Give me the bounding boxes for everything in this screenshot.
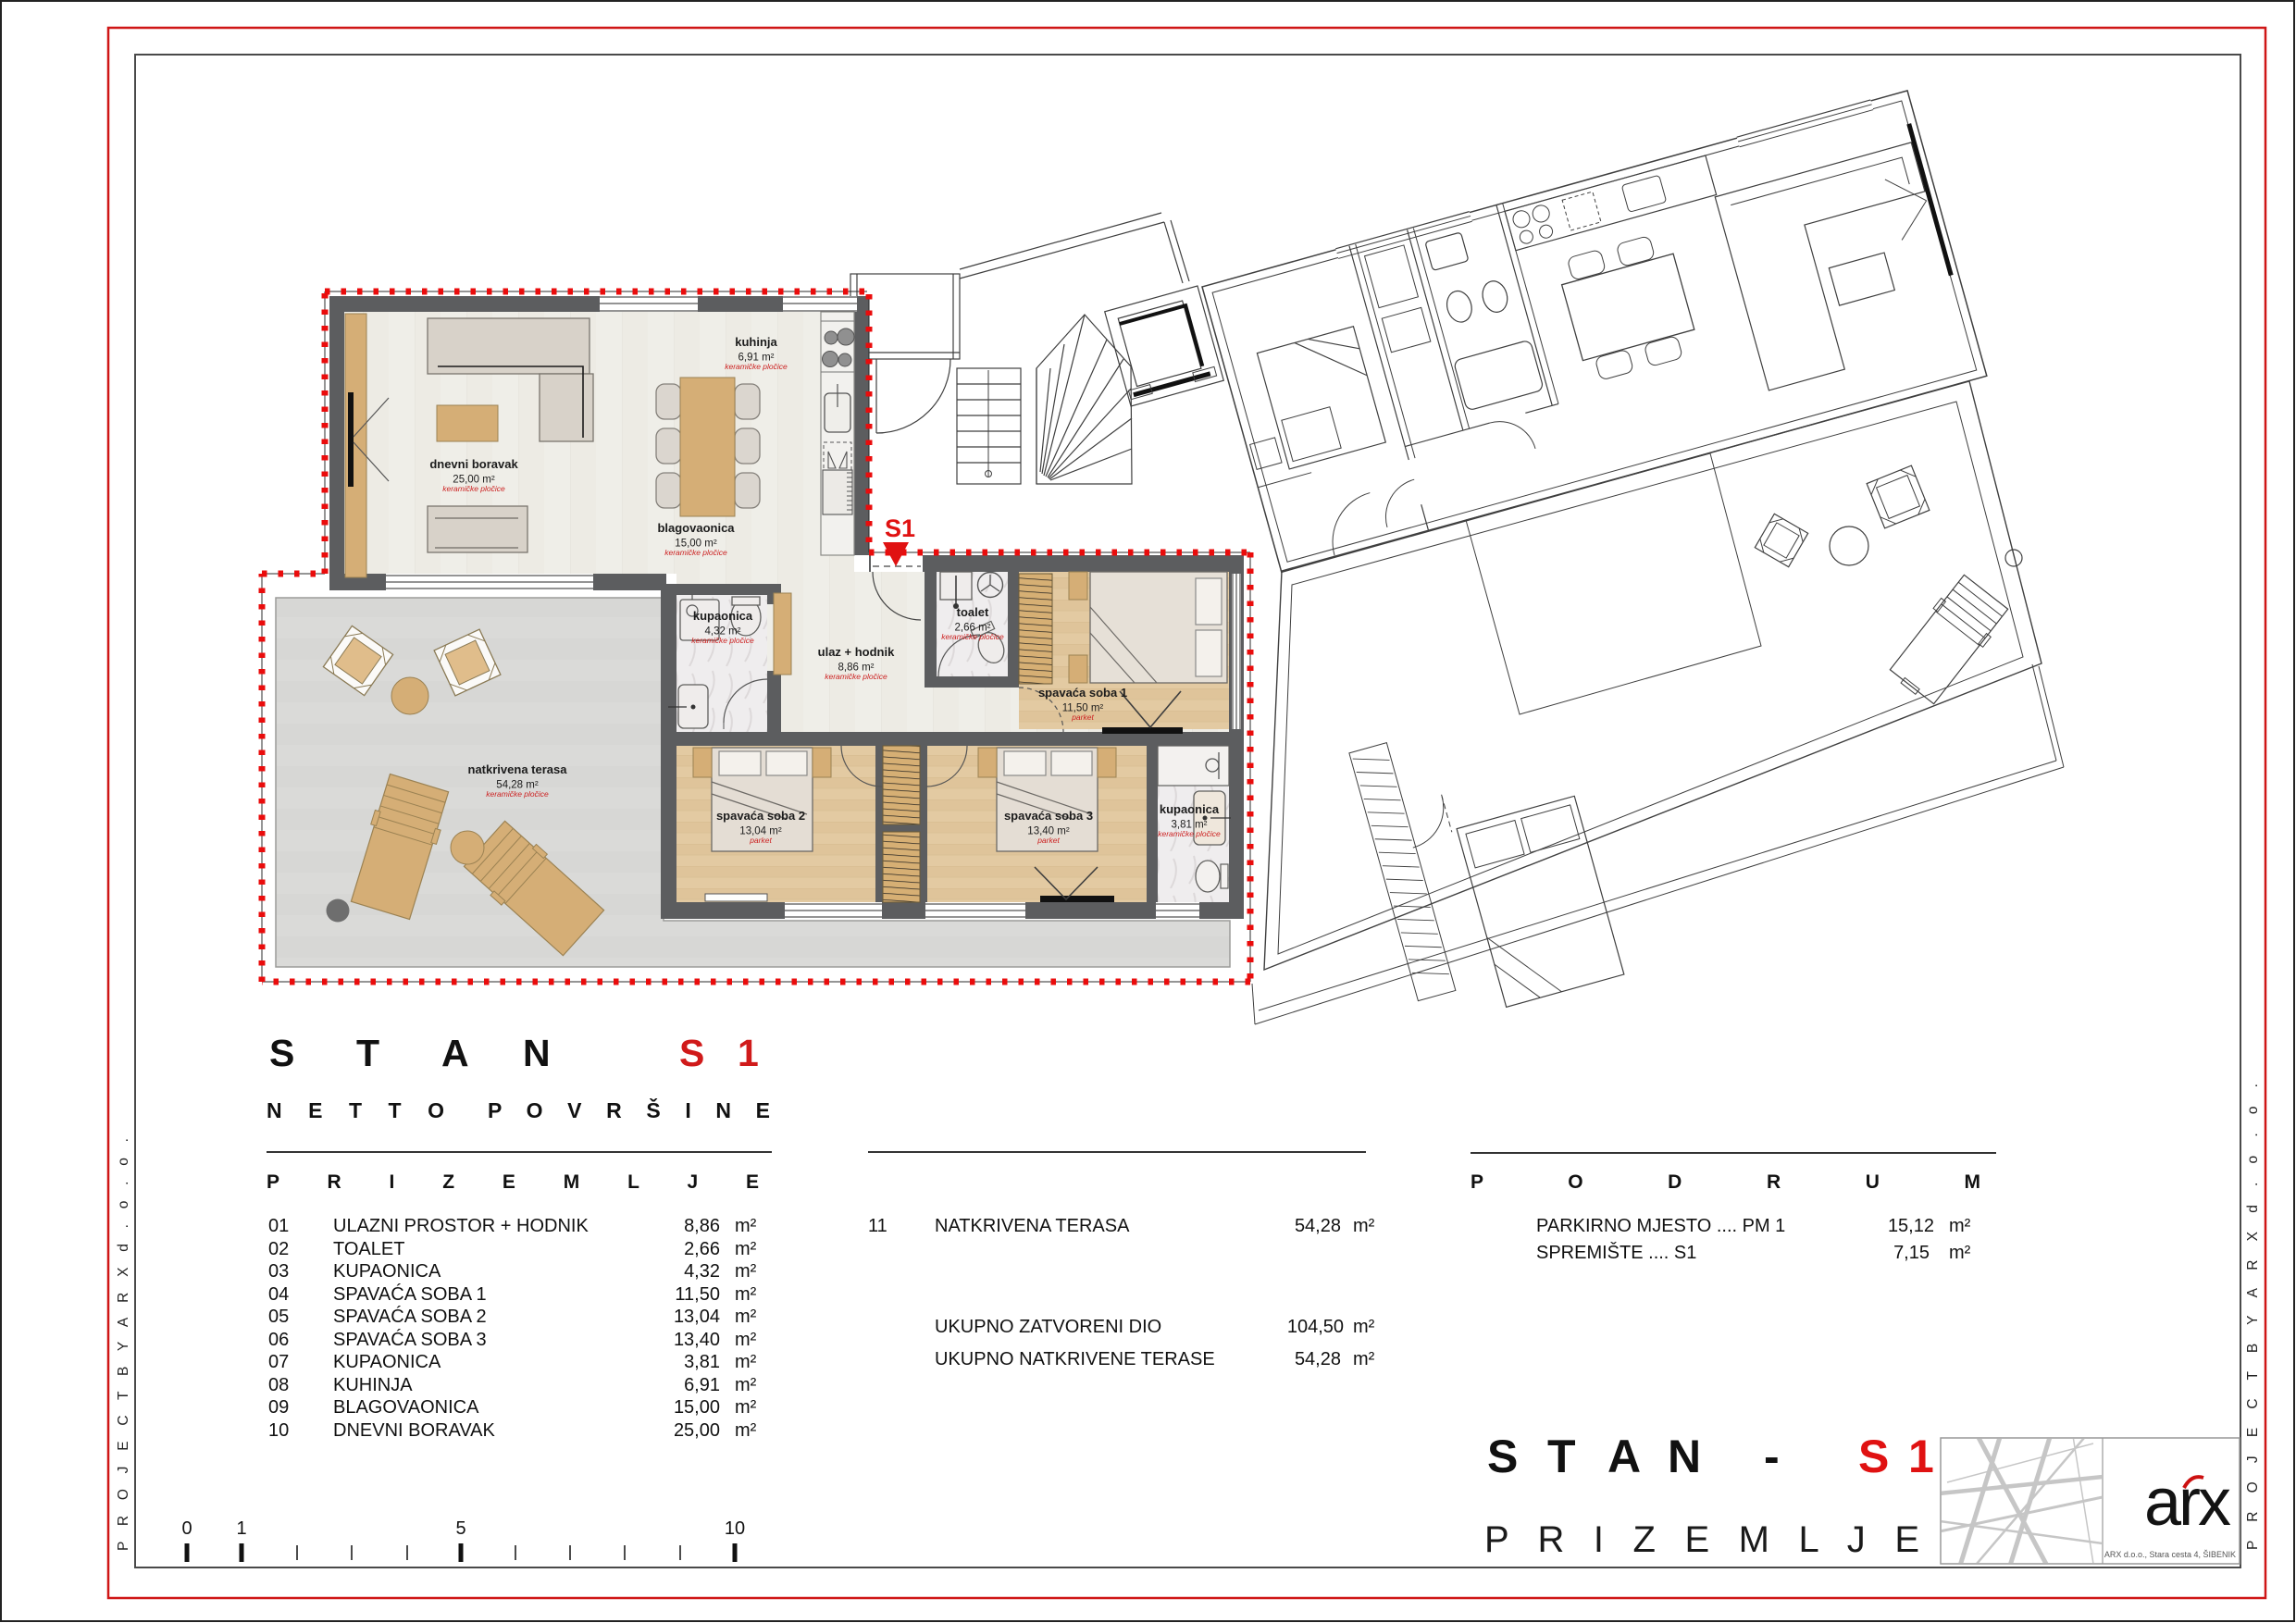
svg-text:10: 10 <box>725 1518 745 1539</box>
svg-text:m²: m² <box>1949 1243 1971 1263</box>
svg-text:m²: m² <box>735 1307 757 1327</box>
svg-text:4,32: 4,32 <box>684 1261 720 1282</box>
svg-text:spavaća soba 2: spavaća soba 2 <box>716 809 805 823</box>
svg-text:07: 07 <box>268 1352 289 1372</box>
svg-text:TOALET: TOALET <box>333 1239 404 1259</box>
svg-text:09: 09 <box>268 1397 289 1418</box>
svg-text:natkrivena terasa: natkrivena terasa <box>468 762 568 776</box>
svg-text:06: 06 <box>268 1330 289 1350</box>
svg-text:m²: m² <box>1353 1216 1375 1236</box>
svg-text:m²: m² <box>735 1420 757 1441</box>
svg-text:S1: S1 <box>885 514 915 542</box>
svg-text:03: 03 <box>268 1261 289 1282</box>
svg-text:13,04: 13,04 <box>674 1307 720 1327</box>
svg-text:01: 01 <box>268 1216 289 1236</box>
svg-text:spavaća soba 3: spavaća soba 3 <box>1004 809 1093 823</box>
svg-text:104,50: 104,50 <box>1287 1317 1344 1337</box>
svg-text:ulaz + hodnik: ulaz + hodnik <box>818 645 895 659</box>
svg-text:P R O J E C T B Y A R X: P R O J E C T B Y A R X d . o . o . <box>116 1133 131 1551</box>
svg-text:ARX d.o.o., Stara cesta 4, ŠIB: ARX d.o.o., Stara cesta 4, ŠIBENIK <box>2104 1550 2236 1559</box>
svg-text:1: 1 <box>1908 1431 1934 1482</box>
svg-text:SPAVAĆA SOBA 2: SPAVAĆA SOBA 2 <box>333 1306 487 1327</box>
svg-text:T: T <box>1547 1431 1576 1482</box>
svg-text:S: S <box>1487 1431 1518 1482</box>
svg-text:keramičke pločice: keramičke pločice <box>1158 829 1221 838</box>
svg-text:-: - <box>1764 1431 1780 1482</box>
svg-text:S: S <box>269 1032 294 1074</box>
svg-text:UKUPNO NATKRIVENE TERASE: UKUPNO NATKRIVENE TERASE <box>935 1349 1215 1369</box>
svg-text:1: 1 <box>738 1032 759 1074</box>
svg-text:toalet: toalet <box>957 605 989 619</box>
svg-text:blagovaonica: blagovaonica <box>657 521 735 535</box>
svg-text:11: 11 <box>868 1216 887 1236</box>
svg-text:25,00: 25,00 <box>674 1420 720 1441</box>
svg-text:UKUPNO ZATVORENI DIO: UKUPNO ZATVORENI DIO <box>935 1317 1161 1337</box>
svg-text:m²: m² <box>1353 1317 1375 1337</box>
svg-text:A: A <box>441 1032 469 1074</box>
svg-text:ULAZNI PROSTOR + HODNIK: ULAZNI PROSTOR + HODNIK <box>333 1216 589 1236</box>
svg-text:arx: arx <box>2144 1466 2231 1540</box>
svg-text:15,00: 15,00 <box>674 1397 720 1418</box>
svg-text:04: 04 <box>268 1284 289 1305</box>
svg-text:keramičke pločice: keramičke pločice <box>825 672 887 681</box>
svg-text:keramičke pločice: keramičke pločice <box>664 548 727 557</box>
svg-text:1: 1 <box>236 1518 246 1539</box>
svg-text:parket: parket <box>749 836 772 845</box>
svg-text:m²: m² <box>735 1261 757 1282</box>
svg-text:KUPAONICA: KUPAONICA <box>333 1352 441 1372</box>
svg-text:dnevni boravak: dnevni boravak <box>429 457 518 471</box>
svg-text:parket: parket <box>1071 712 1094 722</box>
svg-text:SPAVAĆA SOBA 1: SPAVAĆA SOBA 1 <box>333 1283 487 1305</box>
svg-text:S: S <box>679 1032 704 1074</box>
svg-text:keramičke pločice: keramičke pločice <box>941 632 1004 641</box>
svg-text:KUHINJA: KUHINJA <box>333 1375 413 1395</box>
svg-text:m²: m² <box>735 1352 757 1372</box>
svg-text:PARKIRNO MJESTO .... PM 1: PARKIRNO MJESTO .... PM 1 <box>1536 1216 1785 1236</box>
svg-text:m²: m² <box>735 1216 757 1236</box>
svg-text:KUPAONICA: KUPAONICA <box>333 1261 441 1282</box>
svg-text:spavaća soba 1: spavaća soba 1 <box>1038 686 1127 700</box>
svg-text:SPAVAĆA SOBA 3: SPAVAĆA SOBA 3 <box>333 1329 487 1350</box>
svg-text:BLAGOVAONICA: BLAGOVAONICA <box>333 1397 479 1418</box>
svg-text:parket: parket <box>1036 836 1060 845</box>
svg-text:5: 5 <box>455 1518 465 1539</box>
svg-text:2,66: 2,66 <box>684 1239 720 1259</box>
svg-text:3,81: 3,81 <box>684 1352 720 1372</box>
svg-text:NATKRIVENA TERASA: NATKRIVENA TERASA <box>935 1216 1130 1236</box>
svg-text:8,86: 8,86 <box>684 1216 720 1236</box>
svg-text:kupaonica: kupaonica <box>1160 802 1220 816</box>
svg-text:keramičke pločice: keramičke pločice <box>725 362 788 371</box>
svg-text:kuhinja: kuhinja <box>735 335 777 349</box>
svg-text:m²: m² <box>735 1397 757 1418</box>
svg-text:54,28: 54,28 <box>1295 1216 1341 1236</box>
svg-text:keramičke pločice: keramičke pločice <box>486 789 549 799</box>
svg-text:11,50: 11,50 <box>675 1284 720 1305</box>
svg-text:T: T <box>356 1032 379 1074</box>
svg-text:10: 10 <box>268 1420 289 1441</box>
svg-text:08: 08 <box>268 1375 289 1395</box>
svg-text:m²: m² <box>735 1284 757 1305</box>
svg-text:m²: m² <box>1353 1349 1375 1369</box>
svg-text:m²: m² <box>735 1239 757 1259</box>
svg-text:m²: m² <box>735 1330 757 1350</box>
svg-text:02: 02 <box>268 1239 289 1259</box>
svg-text:54,28: 54,28 <box>1295 1349 1341 1369</box>
svg-text:N: N <box>523 1032 551 1074</box>
svg-text:P R O J E C T B Y A R X: P R O J E C T B Y A R X d . o . o . <box>2245 1078 2261 1550</box>
svg-text:keramičke pločice: keramičke pločice <box>442 484 505 493</box>
svg-text:P R I Z E M L J E: P R I Z E M L J E <box>1484 1519 1919 1560</box>
svg-text:7,15: 7,15 <box>1893 1243 1930 1263</box>
svg-text:m²: m² <box>735 1375 757 1395</box>
svg-text:N: N <box>1668 1431 1701 1482</box>
svg-text:DNEVNI BORAVAK: DNEVNI BORAVAK <box>333 1420 496 1441</box>
svg-text:S: S <box>1858 1431 1889 1482</box>
svg-text:6,91: 6,91 <box>684 1375 720 1395</box>
svg-text:kupaonica: kupaonica <box>693 609 753 623</box>
svg-text:SPREMIŠTE .... S1: SPREMIŠTE .... S1 <box>1536 1242 1696 1263</box>
svg-text:05: 05 <box>268 1307 289 1327</box>
svg-text:13,40: 13,40 <box>674 1330 720 1350</box>
svg-text:keramičke pločice: keramičke pločice <box>691 636 754 645</box>
svg-text:15,12: 15,12 <box>1888 1216 1934 1236</box>
svg-text:m²: m² <box>1949 1216 1971 1236</box>
svg-text:0: 0 <box>181 1518 192 1539</box>
svg-text:A: A <box>1607 1431 1641 1482</box>
